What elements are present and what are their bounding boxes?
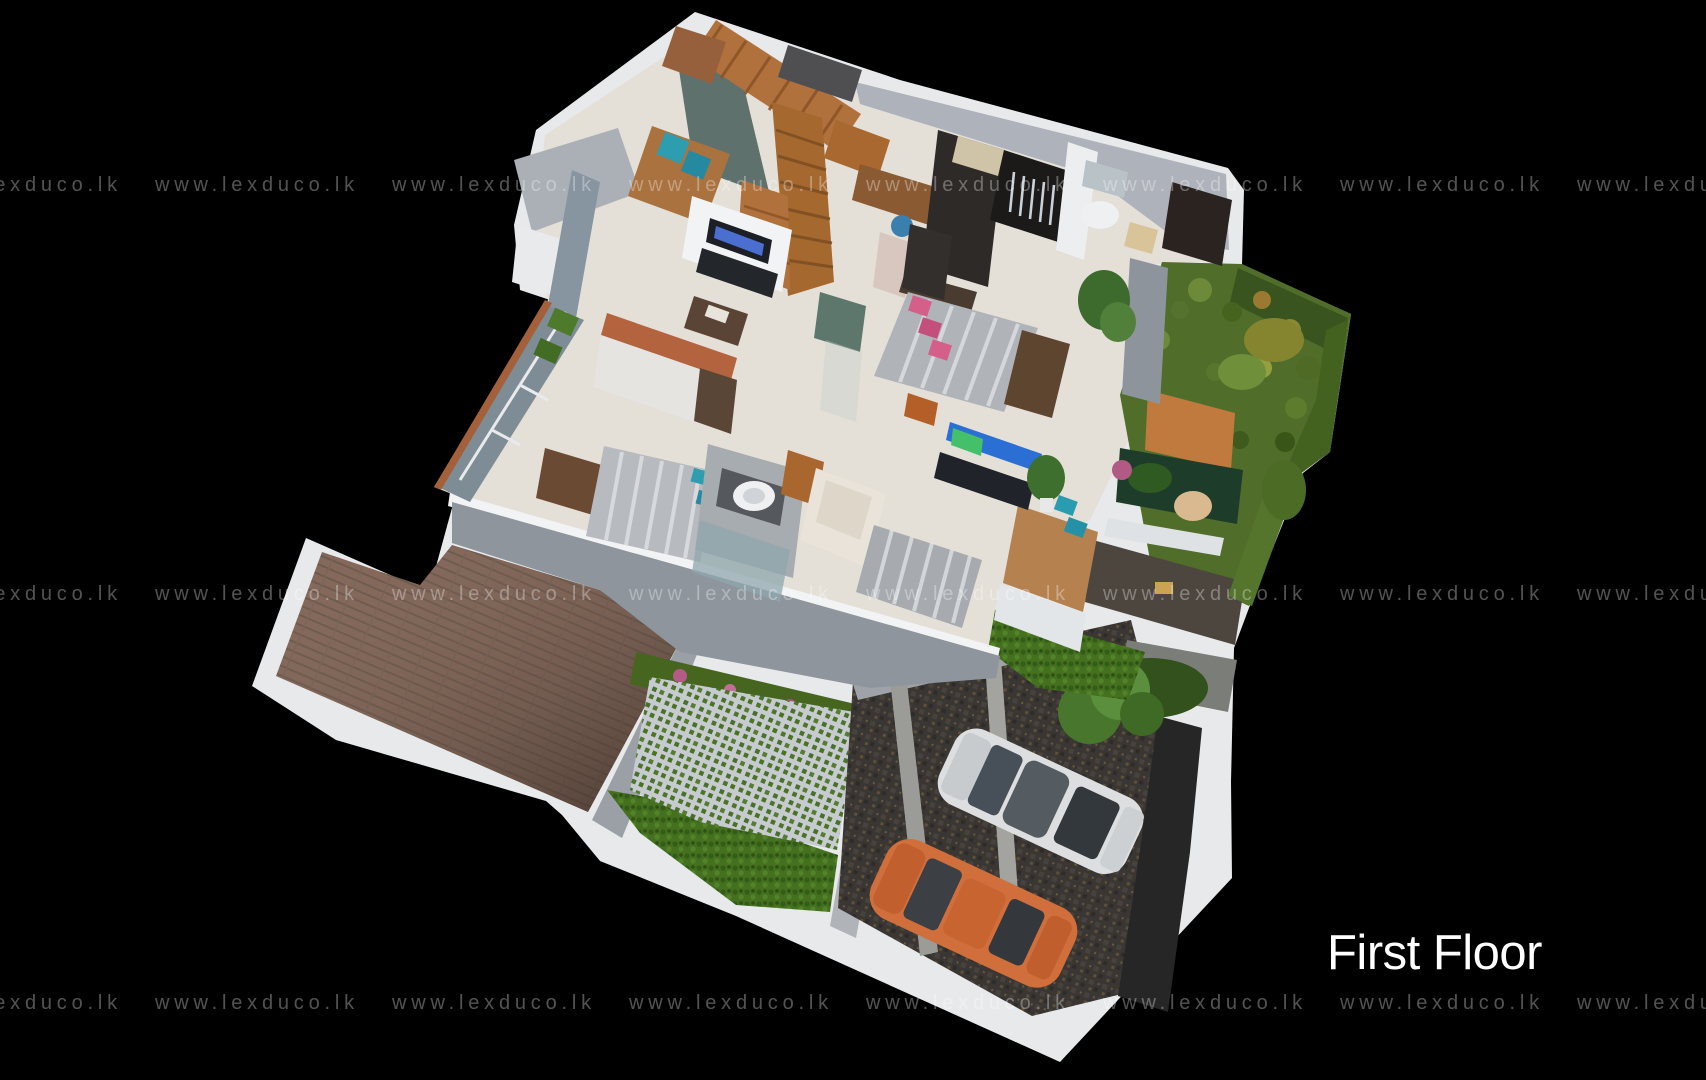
svg-text:www.lexduco.lk: www.lexduco.lk [0, 174, 122, 196]
svg-text:www.lexduco.lk: www.lexduco.lk [1576, 992, 1706, 1014]
svg-text:www.lexduco.lk: www.lexduco.lk [1102, 174, 1307, 196]
svg-text:www.lexduco.lk: www.lexduco.lk [154, 992, 359, 1014]
svg-text:www.lexduco.lk: www.lexduco.lk [1339, 174, 1544, 196]
svg-text:www.lexduco.lk: www.lexduco.lk [865, 174, 1070, 196]
svg-text:www.lexduco.lk: www.lexduco.lk [391, 583, 596, 605]
svg-text:www.lexduco.lk: www.lexduco.lk [1102, 583, 1307, 605]
svg-text:First Floor: First Floor [1327, 926, 1542, 980]
svg-text:www.lexduco.lk: www.lexduco.lk [628, 992, 833, 1014]
svg-text:www.lexduco.lk: www.lexduco.lk [1576, 174, 1706, 196]
svg-text:www.lexduco.lk: www.lexduco.lk [1102, 992, 1307, 1014]
svg-text:www.lexduco.lk: www.lexduco.lk [1339, 583, 1544, 605]
svg-text:www.lexduco.lk: www.lexduco.lk [1339, 992, 1544, 1014]
svg-text:www.lexduco.lk: www.lexduco.lk [0, 992, 122, 1014]
svg-text:www.lexduco.lk: www.lexduco.lk [391, 992, 596, 1014]
svg-text:www.lexduco.lk: www.lexduco.lk [628, 174, 833, 196]
svg-text:www.lexduco.lk: www.lexduco.lk [1576, 583, 1706, 605]
svg-text:www.lexduco.lk: www.lexduco.lk [391, 174, 596, 196]
svg-text:www.lexduco.lk: www.lexduco.lk [865, 583, 1070, 605]
svg-text:www.lexduco.lk: www.lexduco.lk [0, 583, 122, 605]
svg-text:www.lexduco.lk: www.lexduco.lk [154, 174, 359, 196]
svg-text:www.lexduco.lk: www.lexduco.lk [154, 583, 359, 605]
svg-text:www.lexduco.lk: www.lexduco.lk [865, 992, 1070, 1014]
svg-text:www.lexduco.lk: www.lexduco.lk [628, 583, 833, 605]
